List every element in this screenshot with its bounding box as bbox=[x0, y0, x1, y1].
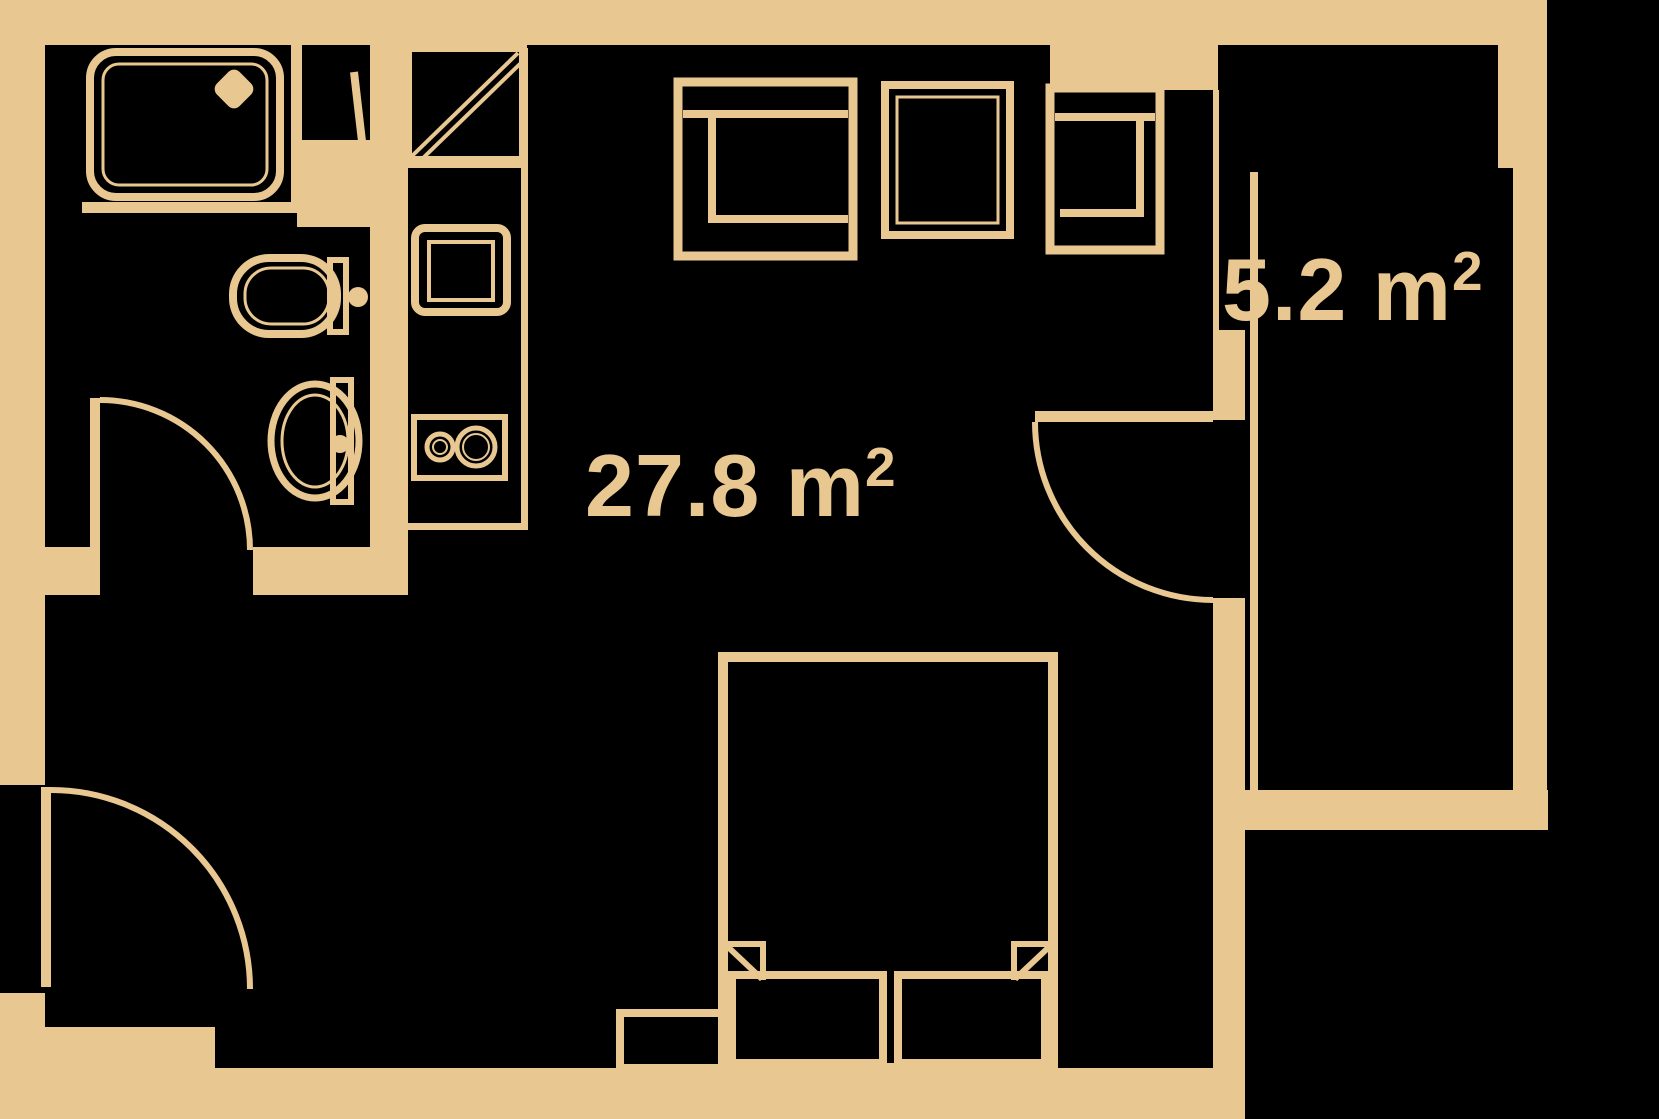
balcony-glazing-line bbox=[1213, 90, 1219, 330]
balcony-door-leaf bbox=[1035, 411, 1213, 422]
counter-bottom-line bbox=[408, 523, 528, 530]
armchair-left-back-line bbox=[683, 110, 848, 118]
armchair-left-front-line bbox=[708, 215, 848, 223]
wall-kitchen bbox=[370, 45, 408, 595]
living-area bbox=[678, 82, 1160, 256]
sink-faucet-icon bbox=[331, 435, 349, 453]
wall-pier-top bbox=[1050, 0, 1218, 90]
fridge-diagonal-1 bbox=[412, 53, 518, 156]
wall-balcony-upper bbox=[1213, 330, 1245, 420]
nightstand bbox=[620, 1013, 722, 1068]
walls bbox=[0, 0, 1548, 1119]
wall-left-lower bbox=[0, 993, 45, 1119]
wall-bathroom-bottom-stub bbox=[45, 547, 100, 595]
balcony-area-label: 5.2 m2 bbox=[1222, 240, 1484, 339]
armchair-left bbox=[678, 82, 853, 256]
wall-shower-right bbox=[291, 45, 302, 213]
balcony-door-swing-arc bbox=[1035, 422, 1213, 600]
armchair-right-front-line bbox=[1060, 209, 1144, 217]
armchair-left-arm-line bbox=[708, 118, 716, 223]
bathroom bbox=[90, 52, 368, 550]
sleeping-area bbox=[620, 657, 1053, 1068]
toilet-bowl-inner bbox=[245, 268, 329, 324]
wall-right-exterior bbox=[1513, 45, 1547, 830]
wall-balcony-bottom bbox=[1245, 790, 1548, 830]
entry-door-swing-arc bbox=[51, 790, 250, 989]
bathroom-door-leaf bbox=[90, 398, 100, 550]
pillow-left bbox=[732, 975, 883, 1063]
wall-shower-bottom bbox=[82, 202, 302, 213]
wall-balcony-lower bbox=[1213, 598, 1245, 1119]
toilet-flush-button bbox=[348, 287, 368, 307]
armchair-right-arm-line bbox=[1136, 119, 1144, 217]
double-bed bbox=[723, 657, 1053, 1068]
burner-small bbox=[427, 434, 453, 460]
side-table-inner bbox=[897, 97, 998, 223]
kitchen-sink-inner bbox=[429, 242, 493, 300]
counter-shelf-line bbox=[408, 160, 523, 168]
fridge-diagonal-2 bbox=[421, 61, 523, 160]
side-table bbox=[885, 85, 1010, 235]
burner-small-inner bbox=[433, 440, 447, 454]
shower-tray bbox=[90, 52, 280, 197]
bathroom-door-swing-arc bbox=[100, 400, 250, 550]
burner-large-inner bbox=[463, 434, 489, 460]
wall-top bbox=[0, 0, 1547, 45]
wall-left-exterior bbox=[0, 0, 45, 785]
pillow-right bbox=[898, 975, 1045, 1063]
shower-drain-icon bbox=[211, 66, 256, 111]
floor-plan-canvas: 27.8 m2 5.2 m2 bbox=[0, 0, 1659, 1119]
floor-plan: 27.8 m2 5.2 m2 bbox=[0, 0, 1659, 1119]
wall-bottom-left-block bbox=[45, 1027, 215, 1119]
entry-door-leaf bbox=[41, 787, 51, 987]
kitchen bbox=[408, 48, 528, 530]
wall-bottom bbox=[215, 1068, 1245, 1119]
main-room-area-label: 27.8 m2 bbox=[585, 436, 897, 535]
wall-toilet-block bbox=[297, 140, 408, 227]
